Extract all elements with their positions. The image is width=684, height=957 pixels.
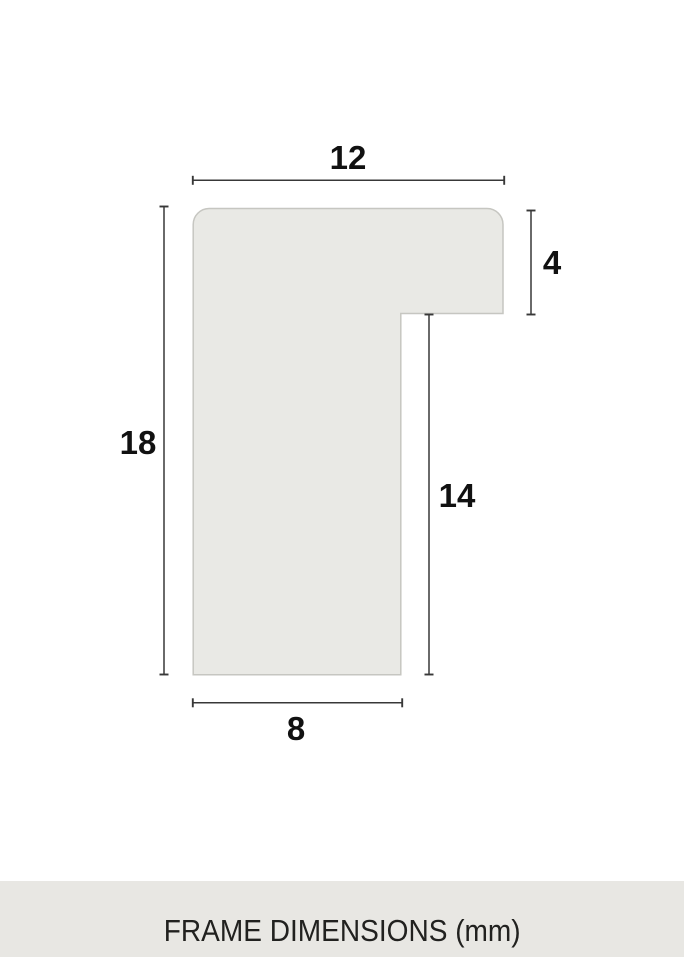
svg-text:8: 8: [287, 710, 305, 747]
svg-text:18: 18: [120, 424, 157, 461]
svg-text:14: 14: [439, 477, 476, 514]
svg-text:4: 4: [543, 244, 562, 281]
svg-text:12: 12: [330, 139, 367, 176]
